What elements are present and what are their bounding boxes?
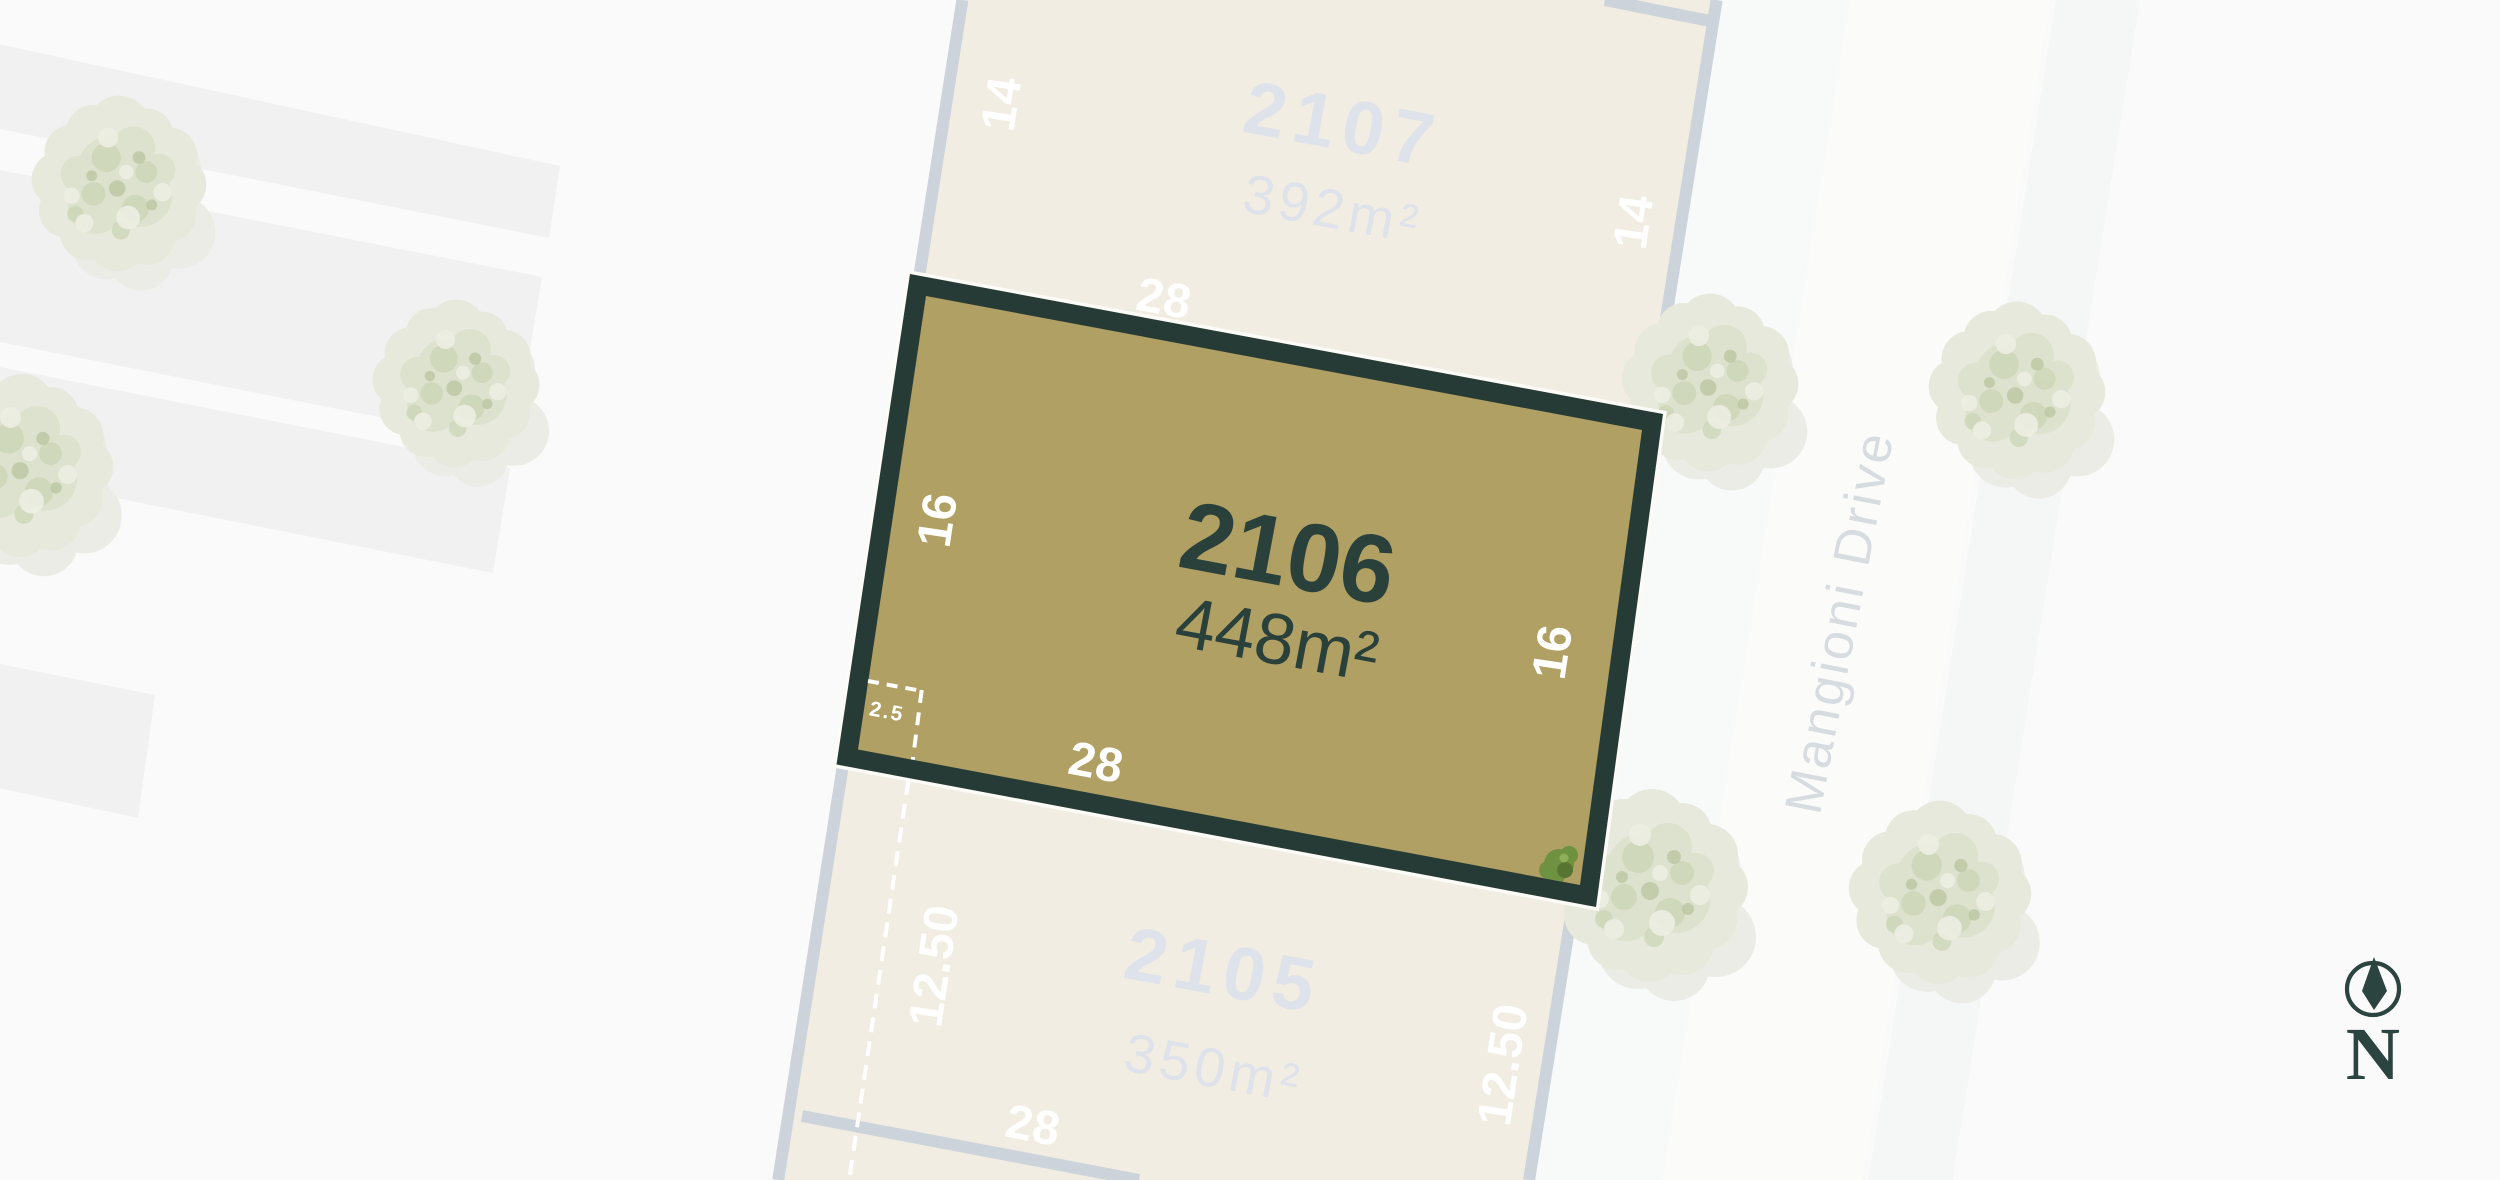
svg-text:28: 28 xyxy=(1132,268,1195,330)
svg-text:14: 14 xyxy=(1604,191,1664,253)
svg-text:28: 28 xyxy=(1064,732,1127,794)
svg-text:28: 28 xyxy=(1001,1095,1064,1157)
svg-text:16: 16 xyxy=(1523,621,1583,683)
svg-text:N: N xyxy=(2346,1013,2400,1096)
svg-text:14: 14 xyxy=(972,73,1032,135)
svg-text:16: 16 xyxy=(908,489,968,551)
